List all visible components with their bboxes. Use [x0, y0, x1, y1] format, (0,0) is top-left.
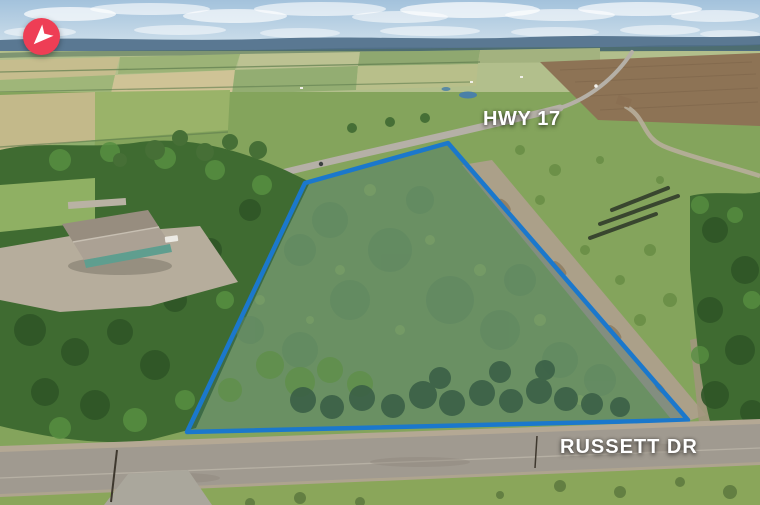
hwy-17-label: HWY 17: [483, 108, 561, 131]
vehicle-dot: [594, 84, 598, 88]
vehicle-dot: [319, 162, 323, 166]
aerial-property-photo: HWY 17 RUSSETT DR: [0, 0, 760, 505]
aerial-scene: [0, 0, 760, 505]
russett-dr-label: RUSSETT DR: [560, 436, 698, 459]
compass-icon: [23, 18, 60, 55]
